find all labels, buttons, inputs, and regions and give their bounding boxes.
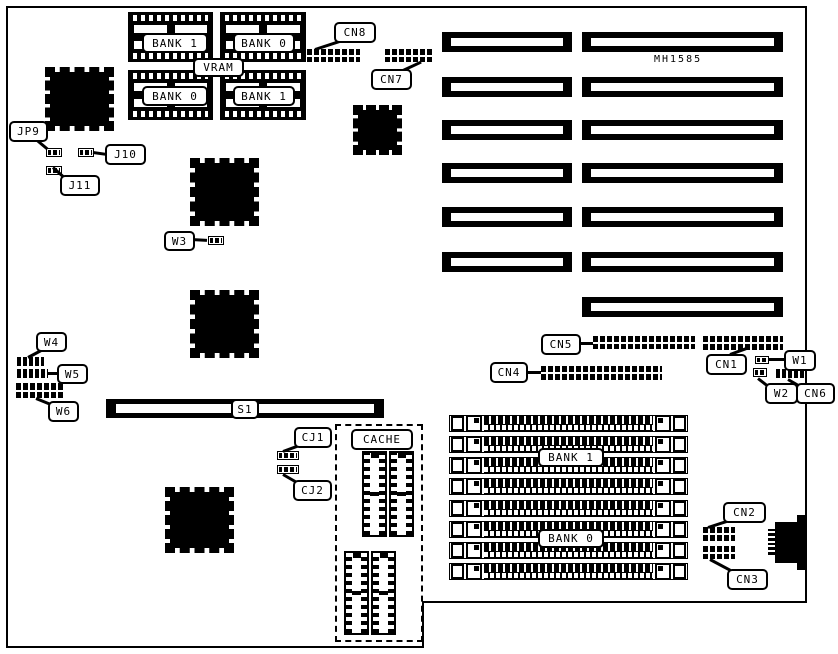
vram-bank-top-left-label: BANK 1 <box>142 33 208 53</box>
cn4-label: CN4 <box>490 362 528 383</box>
isa-slot-left-1 <box>442 32 572 52</box>
chip-mid-top <box>353 105 402 155</box>
keyboard-connector-pins-bottom <box>768 543 775 555</box>
pin-header-cn7 <box>385 49 432 62</box>
isa-slot-left-6 <box>442 252 572 272</box>
simm-socket-row <box>449 500 688 517</box>
simm-socket-row <box>449 563 688 580</box>
jumper-w1 <box>755 356 769 364</box>
chip-top-left <box>45 67 114 131</box>
vram-bank-top-right-label: BANK 0 <box>233 33 295 53</box>
cache-label: CACHE <box>351 429 413 450</box>
jumper-cj2 <box>277 465 299 474</box>
cn5-label: CN5 <box>541 334 581 355</box>
w3-label: W3 <box>164 231 195 251</box>
isa-slot-right-2 <box>582 77 783 97</box>
cache-dip-socket-1 <box>362 451 387 537</box>
pin-header-cn5 <box>593 336 695 349</box>
simm-bank0-label: BANK 0 <box>538 529 604 548</box>
w5-label: W5 <box>57 364 88 384</box>
j11-label: J11 <box>60 175 100 196</box>
isa-slot-left-3 <box>442 120 572 140</box>
jumper-j10 <box>78 148 94 157</box>
cache-dip-socket-3 <box>344 551 369 635</box>
cn6-label: CN6 <box>796 383 835 404</box>
simm-socket-row <box>449 415 688 432</box>
isa-slot-right-7 <box>582 297 783 317</box>
w1-label: W1 <box>784 350 816 371</box>
isa-slot-right-5 <box>582 207 783 227</box>
isa-slot-right-4 <box>582 163 783 183</box>
isa-slot-right-1 <box>582 32 783 52</box>
part-number-text: MH1585 <box>654 54 702 65</box>
simm-socket-row <box>449 478 688 495</box>
keyboard-connector-tab-top <box>797 515 806 523</box>
isa-slot-right-3 <box>582 120 783 140</box>
isa-slot-left-2 <box>442 77 572 97</box>
cache-dip-socket-4 <box>371 551 396 635</box>
simm-bank1-label: BANK 1 <box>538 448 604 467</box>
s1-label: S1 <box>231 399 259 419</box>
w1-pointer <box>769 358 784 361</box>
pin-header-w5 <box>17 369 48 378</box>
keyboard-connector-pins-top <box>768 529 775 541</box>
pin-header-cn3 <box>703 546 735 559</box>
keyboard-connector <box>775 522 806 563</box>
chip-mid-upper <box>190 158 259 226</box>
jumper-jp9 <box>46 148 62 157</box>
cn8-label: CN8 <box>334 22 376 43</box>
keyboard-connector-tab-bottom <box>797 562 806 570</box>
w2-label: W2 <box>765 383 798 404</box>
pin-header-w4 <box>17 357 44 366</box>
chip-mid-lower <box>190 290 259 358</box>
motherboard-diagram: BANK 1 BANK 0 BANK 0 BANK 1 VRAM CN8 CN7… <box>0 0 838 654</box>
vram-bank-bottom-left-label: BANK 0 <box>142 86 208 106</box>
cj1-label: CJ1 <box>294 427 332 448</box>
j10-label: J10 <box>105 144 146 165</box>
cn2-label: CN2 <box>723 502 766 523</box>
cache-dip-socket-2 <box>389 451 414 537</box>
cn3-label: CN3 <box>727 569 768 590</box>
pin-header-w6 <box>16 383 64 398</box>
cj2-label: CJ2 <box>293 480 332 501</box>
jumper-cj1 <box>277 451 299 460</box>
isa-slot-left-5 <box>442 207 572 227</box>
chip-bottom-left <box>165 487 234 553</box>
cn1-label: CN1 <box>706 354 747 375</box>
jp9-label: JP9 <box>9 121 48 142</box>
jumper-w3 <box>208 236 224 245</box>
jumper-w2 <box>753 368 767 377</box>
vram-label: VRAM <box>193 58 244 77</box>
pin-header-cn4 <box>541 366 662 380</box>
isa-slot-right-6 <box>582 252 783 272</box>
cn7-label: CN7 <box>371 69 412 90</box>
w4-label: W4 <box>36 332 67 352</box>
vram-bank-bottom-right-label: BANK 1 <box>233 86 295 106</box>
w6-label: W6 <box>48 401 79 422</box>
isa-slot-left-4 <box>442 163 572 183</box>
